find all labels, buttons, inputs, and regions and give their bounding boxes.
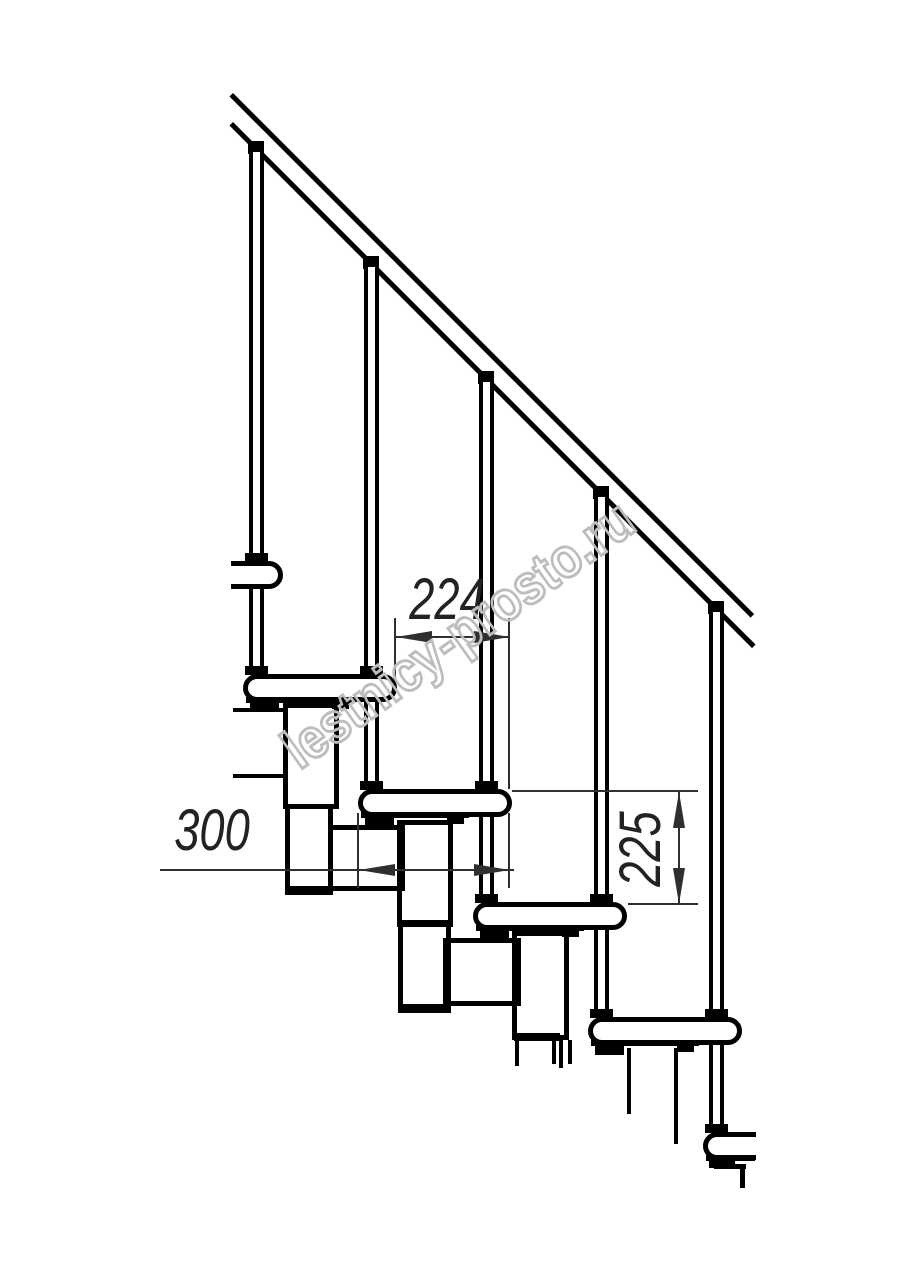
dimension-label-300: 300	[165, 803, 259, 859]
baluster-4	[594, 497, 609, 1018]
dim300-ext-line	[508, 813, 510, 888]
dim225-ext-line	[512, 790, 698, 792]
dim225-arrow-up	[673, 792, 685, 828]
module4-lower-line	[515, 1038, 519, 1066]
module6-line	[740, 1166, 745, 1188]
baluster-5	[709, 612, 724, 1133]
module2-link-line	[233, 708, 285, 712]
dimension-label-225: 225	[613, 802, 669, 896]
module2-lower-tube	[285, 804, 333, 895]
dim225-arrow-down	[673, 868, 685, 904]
tread-6	[703, 1132, 756, 1160]
dim300-arrow-left	[359, 864, 395, 876]
module3-link-tube	[328, 825, 405, 891]
tread-1-surface	[231, 561, 283, 589]
dim300-ext-line	[357, 813, 359, 888]
module4-vertical-tube	[512, 931, 569, 1040]
tread-joint-foot	[595, 1044, 624, 1055]
tread-3	[358, 789, 512, 817]
tread-joint-foot	[677, 1044, 694, 1052]
tread-4	[473, 902, 627, 930]
tread-6-surface	[703, 1132, 756, 1160]
dim224-ext-line	[508, 618, 510, 789]
staircase-drawing: 224 300 225 lestnicy-prosto.ru	[0, 0, 914, 1280]
dim225-ext-line	[628, 903, 698, 905]
tread-1	[231, 561, 283, 589]
dim300-line	[160, 869, 514, 871]
module2-link-line	[233, 774, 285, 778]
module5-tube-line	[627, 1048, 631, 1114]
tread-5	[588, 1017, 742, 1045]
module4-link-tube	[443, 938, 521, 1006]
module3-vertical-tube	[397, 820, 453, 927]
baluster-1	[249, 152, 264, 675]
module4-lower-line	[559, 1038, 563, 1068]
module5-link-line	[552, 1040, 556, 1064]
watermark-text: lestnicy-prosto.ru	[272, 491, 642, 778]
module5-link-line	[568, 1040, 572, 1064]
module5-tube-line	[674, 1048, 678, 1144]
dim300-arrow-right	[474, 864, 510, 876]
